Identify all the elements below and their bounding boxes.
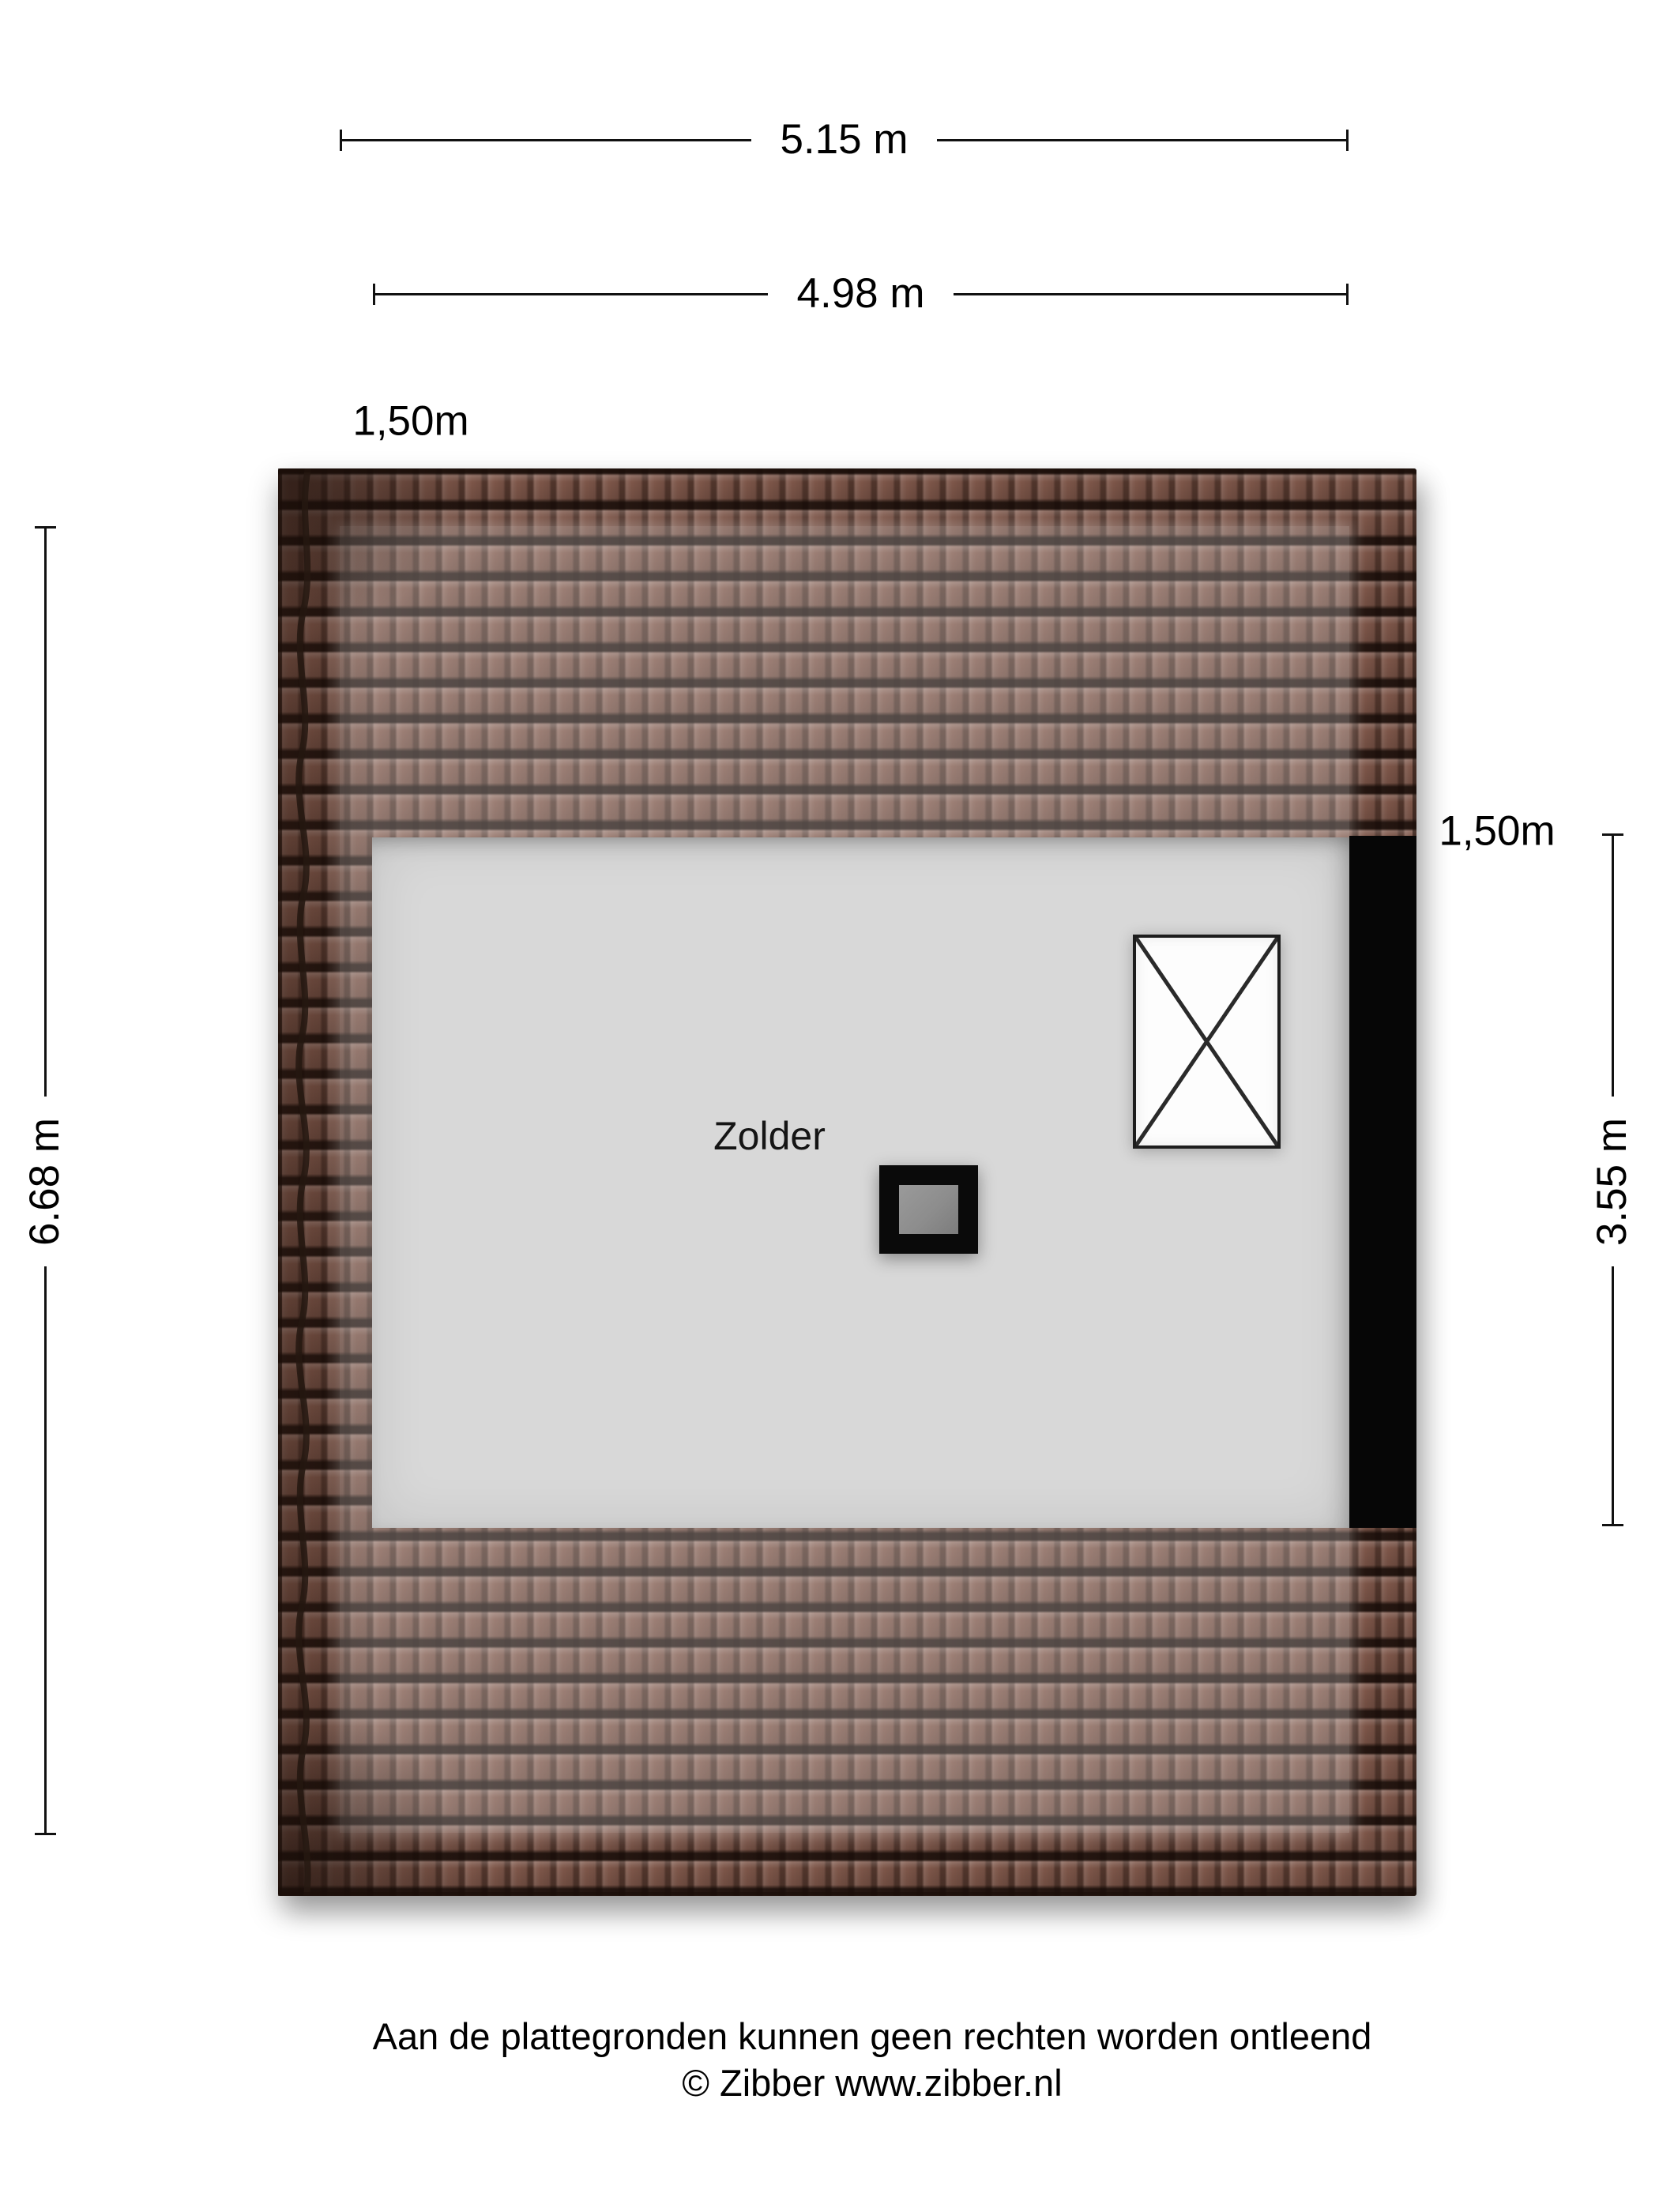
dimension-line xyxy=(1612,836,1614,1097)
dimension-line xyxy=(1612,1266,1614,1524)
dimension-end-tick xyxy=(340,130,342,151)
dimension-inner-height: 3.55 m xyxy=(1602,833,1623,1526)
chimney-flue xyxy=(899,1185,958,1234)
dimension-end-tick xyxy=(1346,130,1349,151)
dimension-end-tick xyxy=(373,284,375,305)
dimension-inner-height-label: 3.55 m xyxy=(1602,1097,1623,1266)
dimension-line xyxy=(44,529,47,1097)
dimension-total-width-label: 5.15 m xyxy=(751,116,936,164)
dimension-inner-width-label: 4.98 m xyxy=(768,270,953,318)
roof-hip-line-icon xyxy=(284,468,332,1896)
footer-disclaimer: Aan de plattegronden kunnen geen rechten… xyxy=(373,2013,1372,2060)
dimension-line xyxy=(44,1266,47,1833)
dimension-end-tick xyxy=(1346,284,1349,305)
room-name-label: Zolder xyxy=(713,1113,826,1159)
footer-copyright: © Zibber www.zibber.nl xyxy=(373,2060,1372,2106)
dimension-total-height-label: 6.68 m xyxy=(35,1097,56,1266)
dimension-total-width: 5.15 m xyxy=(340,95,1349,185)
dimension-end-tick xyxy=(1602,1524,1623,1526)
skylight-window xyxy=(1133,935,1281,1149)
knee-wall-left-label: 1,50m xyxy=(352,397,468,446)
dimension-total-height: 6.68 m xyxy=(35,526,56,1835)
wall-strip xyxy=(1349,836,1416,1528)
skylight-x-icon xyxy=(1136,938,1277,1145)
footer: Aan de plattegronden kunnen geen rechten… xyxy=(373,2013,1372,2106)
knee-wall-right-label: 1,50m xyxy=(1439,807,1555,856)
floorplan-page: 5.15 m 4.98 m 1,50m 1,50m 6.68 m 3.55 m xyxy=(0,0,1659,2212)
dimension-end-tick xyxy=(35,1833,56,1835)
chimney-icon xyxy=(879,1165,978,1254)
dimension-inner-width: 4.98 m xyxy=(373,249,1349,339)
